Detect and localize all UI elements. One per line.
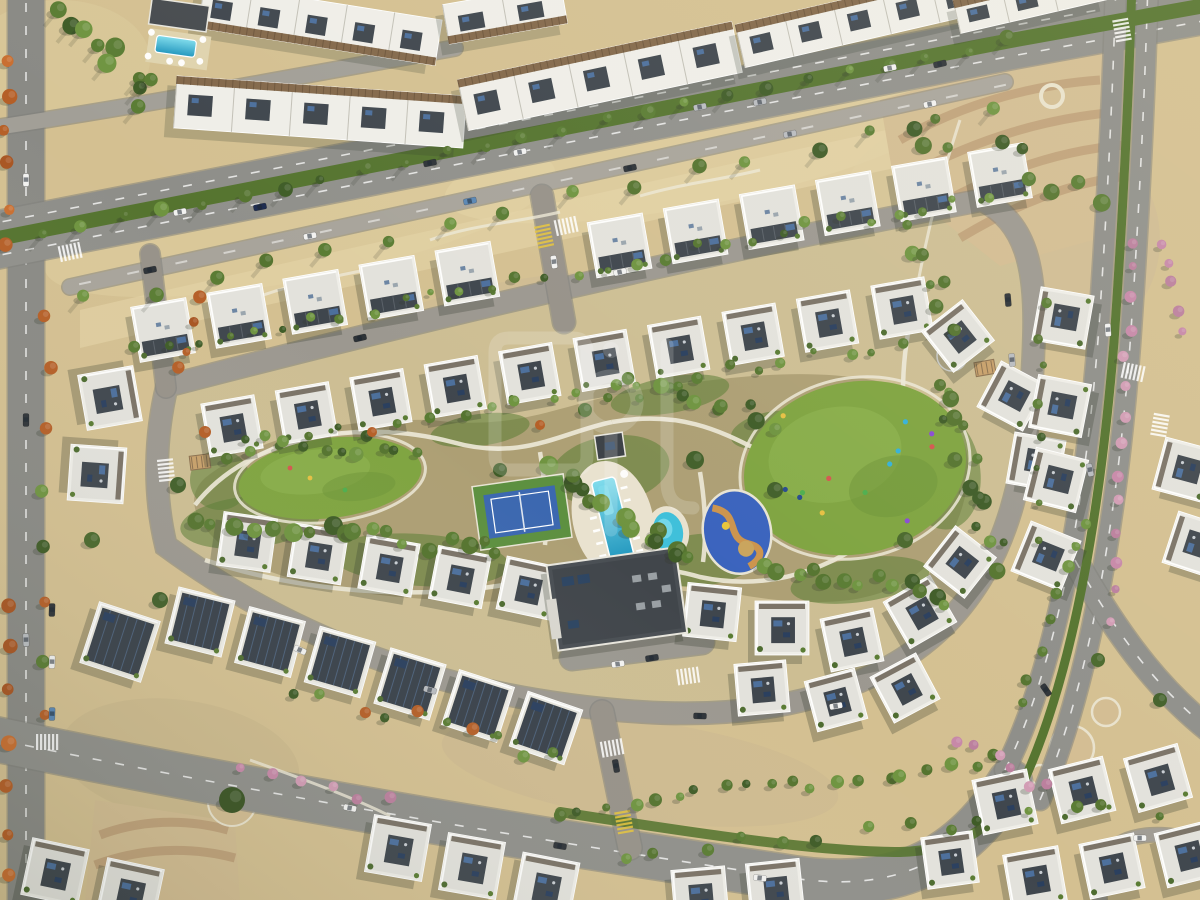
aerial-render-svg	[0, 0, 1200, 900]
masterplan-aerial-image	[0, 0, 1200, 900]
lighting-overlay	[0, 0, 1200, 900]
